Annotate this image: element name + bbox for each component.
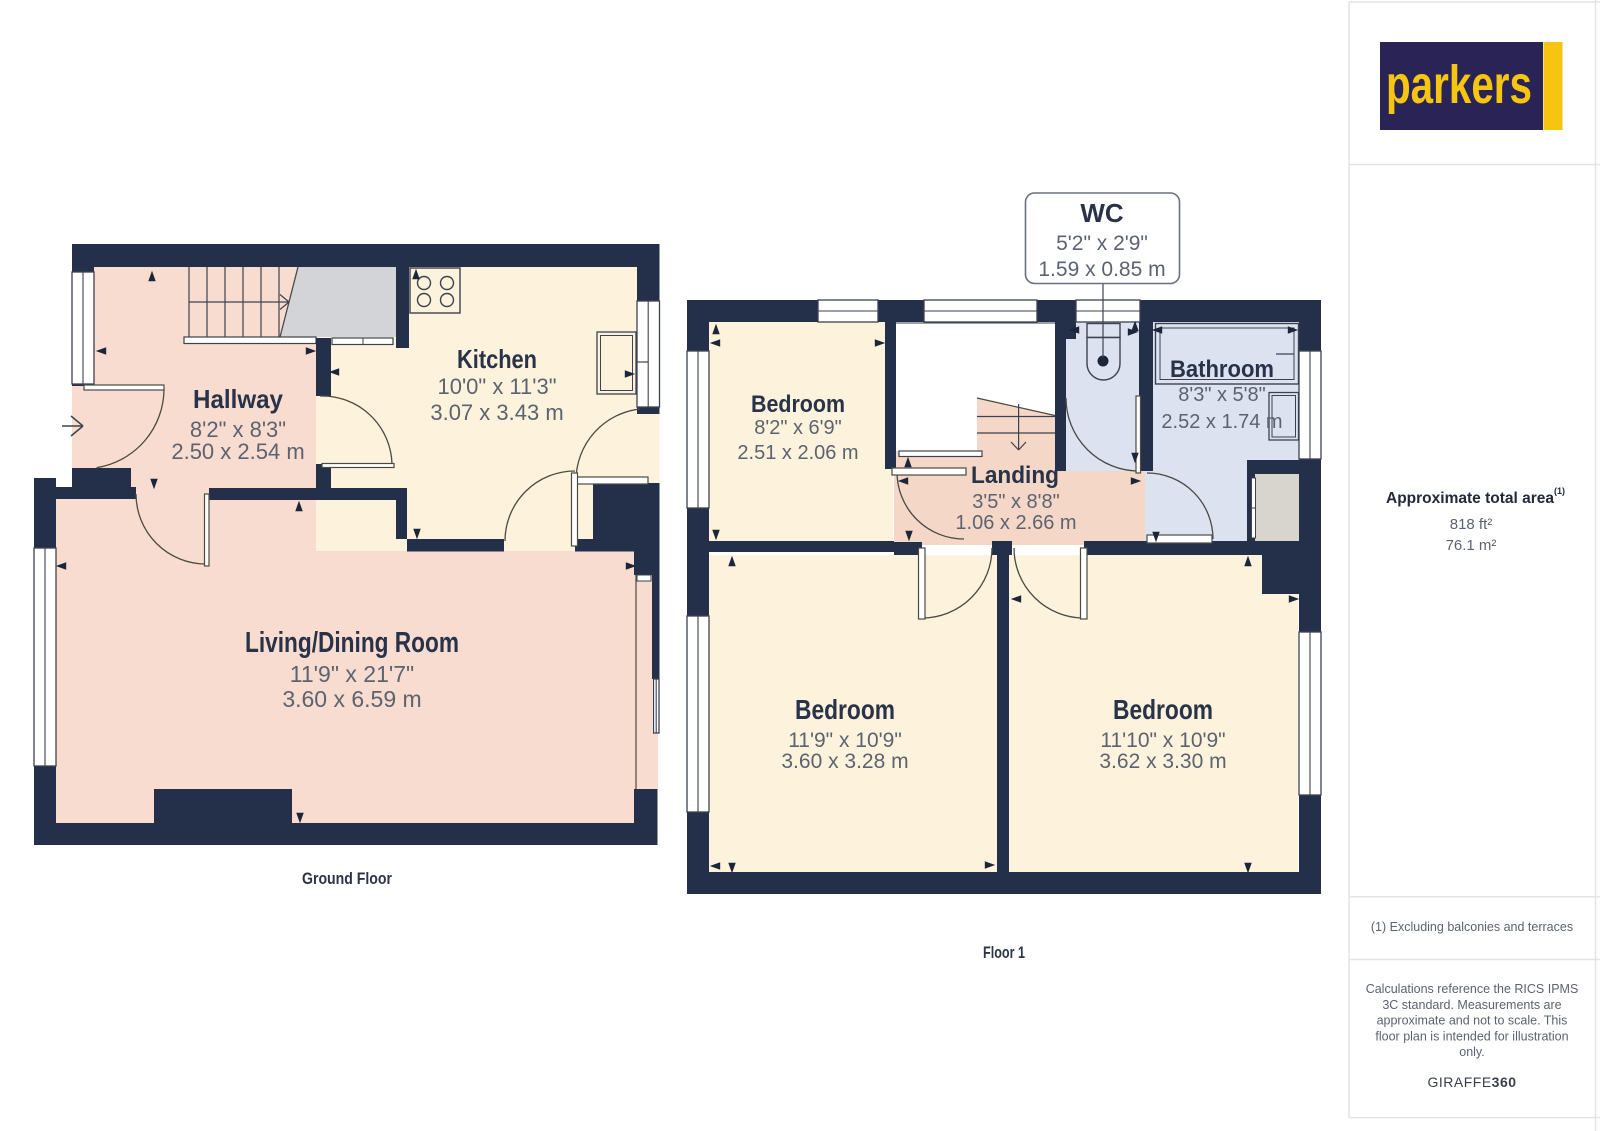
svg-text:Bathroom: Bathroom — [1170, 356, 1274, 383]
svg-text:3.62 x 3.30 m: 3.62 x 3.30 m — [1099, 750, 1226, 773]
svg-text:10'0" x 11'3": 10'0" x 11'3" — [437, 374, 556, 399]
svg-text:GIRAFFE360: GIRAFFE360 — [1427, 1074, 1516, 1090]
svg-text:5'2" x 2'9": 5'2" x 2'9" — [1056, 232, 1148, 255]
svg-text:11'9" x 21'7": 11'9" x 21'7" — [290, 661, 414, 687]
svg-text:(1) Excluding balconies and te: (1) Excluding balconies and terraces — [1371, 920, 1573, 934]
svg-text:Living/Dining Room: Living/Dining Room — [245, 627, 459, 659]
svg-text:Approximate total area: Approximate total area — [1386, 490, 1554, 507]
svg-text:11'9" x 10'9": 11'9" x 10'9" — [788, 729, 902, 752]
svg-text:1.06 x 2.66 m: 1.06 x 2.66 m — [955, 512, 1076, 534]
svg-text:2.51 x 2.06 m: 2.51 x 2.06 m — [737, 442, 858, 464]
svg-text:WC: WC — [1080, 198, 1124, 228]
svg-text:3C standard. Measurements are: 3C standard. Measurements are — [1382, 998, 1561, 1012]
svg-text:8'3" x 5'8": 8'3" x 5'8" — [1178, 384, 1265, 406]
svg-text:Floor 1: Floor 1 — [983, 944, 1025, 962]
svg-text:3.07 x 3.43 m: 3.07 x 3.43 m — [430, 400, 563, 425]
svg-text:11'10" x 10'9": 11'10" x 10'9" — [1100, 729, 1225, 752]
svg-text:Bedroom: Bedroom — [1113, 694, 1213, 725]
svg-text:Bedroom: Bedroom — [795, 694, 895, 725]
svg-text:approximate and not to scale.: approximate and not to scale. This — [1377, 1014, 1568, 1028]
svg-text:Ground Floor: Ground Floor — [302, 870, 392, 888]
svg-text:floor plan is intended for ill: floor plan is intended for illustration — [1375, 1029, 1568, 1043]
svg-text:(1): (1) — [1554, 486, 1565, 496]
svg-text:parkers: parkers — [1386, 55, 1532, 115]
svg-text:Bedroom: Bedroom — [751, 391, 845, 418]
svg-text:3'5" x 8'8": 3'5" x 8'8" — [972, 491, 1059, 513]
svg-text:3.60 x 3.28 m: 3.60 x 3.28 m — [781, 750, 908, 773]
svg-text:76.1 m²: 76.1 m² — [1446, 537, 1497, 554]
svg-text:818 ft²: 818 ft² — [1450, 516, 1493, 533]
svg-text:3.60 x 6.59 m: 3.60 x 6.59 m — [282, 686, 421, 712]
svg-text:Hallway: Hallway — [193, 384, 284, 414]
svg-text:Landing: Landing — [971, 462, 1059, 489]
svg-text:only.: only. — [1459, 1045, 1484, 1059]
svg-text:Calculations reference the RIC: Calculations reference the RICS IPMS — [1366, 982, 1579, 996]
svg-text:8'2" x 6'9": 8'2" x 6'9" — [754, 417, 841, 439]
svg-text:1.59 x 0.85 m: 1.59 x 0.85 m — [1038, 258, 1165, 281]
svg-text:Kitchen: Kitchen — [457, 344, 537, 374]
svg-text:2.52 x 1.74 m: 2.52 x 1.74 m — [1161, 411, 1282, 433]
svg-text:2.50 x 2.54 m: 2.50 x 2.54 m — [171, 439, 304, 464]
